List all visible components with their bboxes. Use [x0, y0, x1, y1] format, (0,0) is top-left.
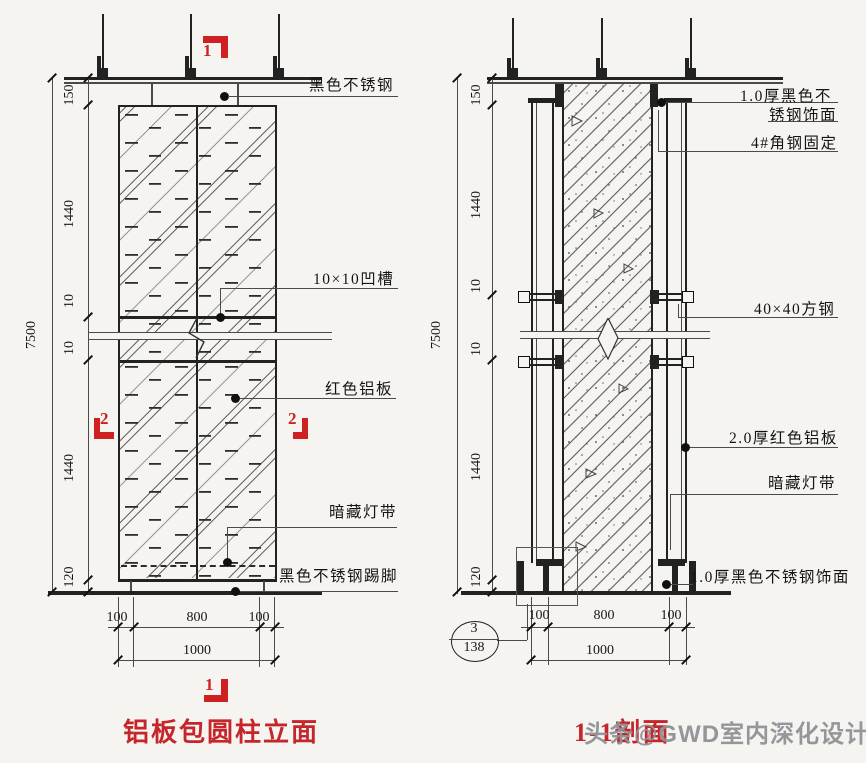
- drawing-primitive: [659, 293, 682, 295]
- panel-right-edge: [275, 105, 277, 581]
- drawing-primitive: [659, 364, 682, 366]
- drawing-primitive: [678, 304, 679, 318]
- square-steel-connector: [555, 355, 564, 369]
- drawing-primitive: [220, 288, 221, 315]
- ceiling-line-thin: [64, 82, 322, 84]
- drawing-primitive: [658, 110, 659, 152]
- dim-b-right: 100: [245, 610, 273, 626]
- left-elevation-drawing: 7500 150 1440 10 10 1440 120 100 800 100…: [0, 0, 433, 763]
- drawing-primitive: [529, 358, 556, 360]
- break-line: [88, 332, 332, 333]
- dim-base: 120: [62, 557, 78, 597]
- callout-square-steel: 40×40方钢: [754, 297, 835, 319]
- dim-upper: 1440: [469, 185, 485, 225]
- drawing-primitive: [659, 299, 682, 301]
- skirting-dashed-line: [121, 565, 275, 567]
- dim-top: 150: [469, 75, 485, 115]
- dim-b-total: 1000: [579, 643, 621, 659]
- drawing-primitive: [662, 580, 671, 589]
- watermark: 头条@GWD室内深化设计: [584, 714, 866, 749]
- dim-line-overall: [52, 77, 53, 594]
- dim-b-mid: 800: [587, 608, 621, 624]
- band-joint: [151, 83, 153, 106]
- dim-upper: 1440: [62, 194, 78, 234]
- hanger-rod: [601, 18, 603, 70]
- dim-b-left: 100: [525, 608, 553, 624]
- callout-groove: 10×10凹槽: [313, 267, 394, 289]
- drawing-primitive: [223, 558, 232, 567]
- dim-b-mid: 800: [180, 610, 214, 626]
- top-angle-fixing: [555, 84, 563, 107]
- dim-b-right: 100: [657, 608, 685, 624]
- section-mark-1-top-bar: [221, 36, 228, 58]
- dim-line-segments: [492, 77, 493, 594]
- panel-left-edge: [118, 105, 120, 581]
- section-mark-2-left: 2: [100, 409, 109, 429]
- drawing-primitive: [657, 98, 666, 107]
- section-mark-1-bottom-bar: [204, 695, 228, 702]
- drawing-primitive: [768, 121, 838, 122]
- callout-top-stainless: 黑色不锈钢: [309, 73, 394, 95]
- drawing-primitive: [231, 587, 240, 596]
- hanger-rod: [102, 14, 104, 70]
- drawing-primitive: [227, 527, 397, 528]
- dim-line-bottom2: [531, 660, 686, 661]
- groove-line-lower: [118, 360, 277, 363]
- section-mark-2-right: 2: [288, 409, 297, 429]
- drawing-primitive: [598, 318, 618, 359]
- hanger-rod: [512, 18, 514, 70]
- drawing-primitive: [216, 313, 225, 322]
- hanger-rod: [690, 18, 692, 70]
- drawing-primitive: [529, 293, 556, 295]
- callout-angle-steel: 4#角钢固定: [751, 131, 838, 153]
- left-drawing-title: 铝板包圆柱立面: [123, 712, 319, 749]
- dim-overall: 7500: [429, 311, 445, 359]
- drawing-primitive: [529, 299, 556, 301]
- drawing-primitive: [240, 591, 398, 592]
- base-channel: [672, 566, 678, 592]
- square-steel-connector: [682, 356, 694, 368]
- square-steel-connector: [650, 355, 659, 369]
- ceiling-line: [487, 77, 783, 80]
- drawing-primitive: [670, 494, 838, 495]
- blueprint-canvas: 7500 150 1440 10 10 1440 120 100 800 100…: [0, 0, 866, 763]
- dim-b-left: 100: [103, 610, 131, 626]
- hanger-rod: [278, 14, 280, 70]
- detail-callout-box: [516, 547, 578, 606]
- drawing-primitive: [686, 597, 687, 665]
- callout-red-panel: 红色铝板: [325, 377, 393, 399]
- dim-line-overall: [457, 77, 458, 594]
- drawing-primitive: [133, 597, 134, 667]
- callout-skirting: 黑色不锈钢踢脚: [279, 564, 398, 586]
- top-panel-cap: [528, 98, 556, 103]
- section-mark-2-left-bar: [94, 432, 114, 439]
- callout-light-strip: 暗藏灯带: [329, 500, 397, 522]
- drawing-primitive: [659, 358, 682, 360]
- drawing-primitive: [274, 597, 275, 667]
- break-zigzag: [187, 318, 207, 358]
- dim-groove2: 10: [469, 329, 485, 369]
- ceiling-line: [64, 77, 322, 80]
- drawing-primitive: [227, 527, 228, 560]
- floor-line: [461, 591, 731, 595]
- dim-b-total: 1000: [176, 643, 218, 659]
- section-mark-1-bottom: 1: [205, 675, 214, 695]
- detail-ref-num: 3: [460, 621, 488, 637]
- drawing-primitive: [231, 394, 240, 403]
- dim-groove1: 10: [62, 281, 78, 321]
- drawing-primitive: [670, 494, 671, 550]
- callout-red-aluminum: 2.0厚红色铝板: [729, 426, 838, 448]
- dim-groove2: 10: [62, 328, 78, 368]
- section-mark-1-top: 1: [203, 41, 212, 61]
- square-steel-connector: [650, 290, 659, 304]
- dim-line-bottom2: [118, 660, 276, 661]
- base-channel: [658, 559, 685, 566]
- break-lens: [595, 318, 621, 360]
- dim-lower: 1440: [469, 447, 485, 487]
- drawing-primitive: [529, 364, 556, 366]
- square-steel-connector: [682, 291, 694, 303]
- drawing-primitive: [189, 318, 204, 358]
- drawing-primitive: [497, 640, 527, 641]
- dim-groove1: 10: [469, 266, 485, 306]
- section-mark-2-right-bar: [293, 432, 308, 439]
- break-line: [88, 339, 332, 340]
- drawing-primitive: [228, 96, 398, 97]
- square-steel-connector: [555, 290, 564, 304]
- drawing-primitive: [259, 597, 260, 667]
- detail-ref-sheet: 138: [456, 640, 492, 656]
- callout-light-strip: 暗藏灯带: [768, 471, 836, 493]
- right-section-drawing: 3 138 7500 150 1440 10 10 1440 120 100 8…: [433, 0, 866, 763]
- dim-overall: 7500: [24, 311, 40, 359]
- callout-ss-bottom: 1.0厚黑色不锈钢饰面: [690, 565, 850, 587]
- dim-top: 150: [62, 75, 78, 115]
- dim-base: 120: [469, 557, 485, 597]
- hanger-rod: [190, 14, 192, 70]
- drawing-primitive: [681, 443, 690, 452]
- dim-line-segments: [88, 77, 89, 594]
- dim-lower: 1440: [62, 448, 78, 488]
- band-joint: [237, 83, 239, 106]
